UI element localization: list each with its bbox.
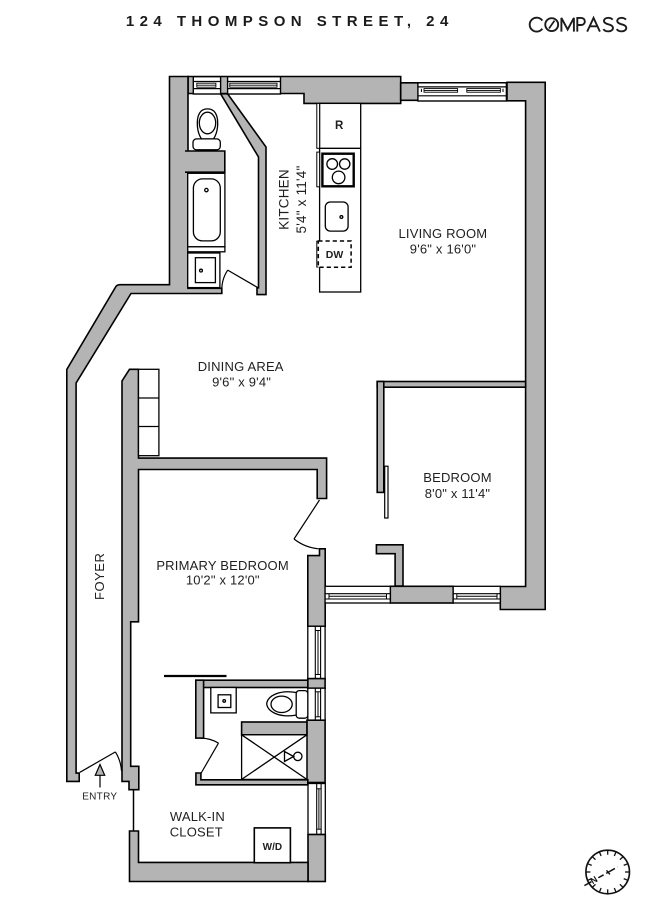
svg-text:124 THOMPSON STREET, 24: 124 THOMPSON STREET, 24 (126, 13, 454, 30)
svg-text:9'6" x 16'0": 9'6" x 16'0" (410, 241, 477, 256)
svg-text:KITCHEN: KITCHEN (276, 169, 291, 230)
svg-text:R: R (335, 120, 344, 132)
svg-text:W/D: W/D (263, 842, 282, 853)
svg-text:BEDROOM: BEDROOM (423, 470, 492, 485)
svg-text:DW: DW (326, 249, 344, 261)
svg-text:FOYER: FOYER (92, 553, 107, 600)
svg-text:ENTRY: ENTRY (82, 792, 117, 803)
svg-text:WALK-IN: WALK-IN (170, 809, 225, 824)
svg-text:5'4" x 11'4": 5'4" x 11'4" (294, 166, 309, 234)
svg-text:10'2" x 12'0": 10'2" x 12'0" (186, 573, 260, 588)
svg-text:CLOSET: CLOSET (170, 825, 223, 840)
svg-text:DINING AREA: DINING AREA (198, 359, 284, 374)
svg-text:9'6" x 9'4": 9'6" x 9'4" (212, 374, 271, 389)
svg-text:PRIMARY BEDROOM: PRIMARY BEDROOM (156, 558, 289, 573)
svg-text:8'0" x 11'4": 8'0" x 11'4" (425, 486, 491, 501)
svg-text:LIVING ROOM: LIVING ROOM (398, 226, 487, 241)
